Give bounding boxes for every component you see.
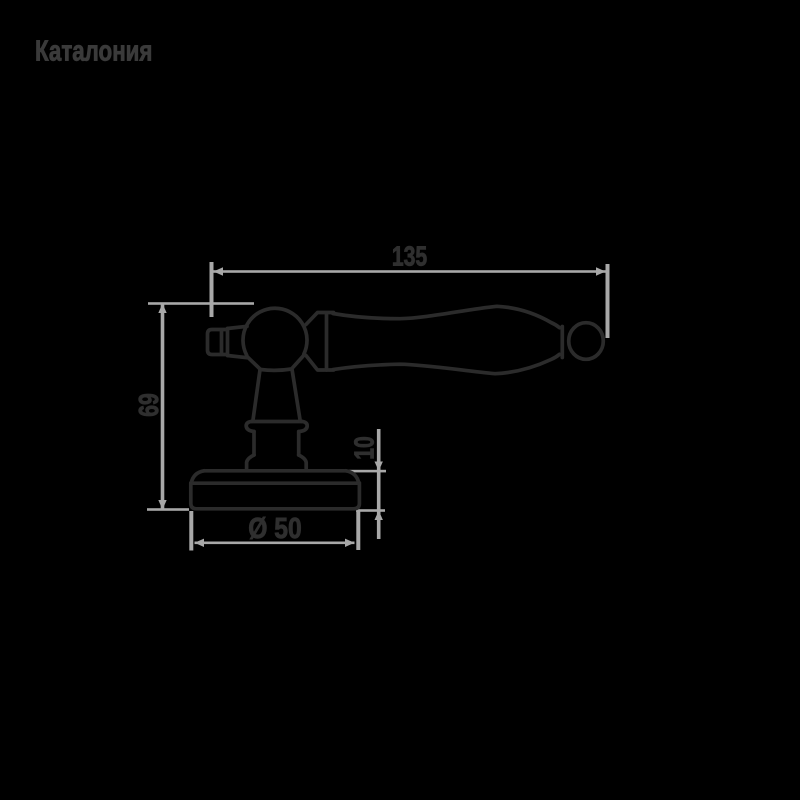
svg-text:Каталония: Каталония: [35, 36, 152, 67]
svg-text:Ø 50: Ø 50: [248, 512, 301, 544]
svg-text:135: 135: [392, 242, 427, 272]
svg-text:69: 69: [134, 393, 164, 417]
svg-text:10: 10: [350, 436, 380, 460]
